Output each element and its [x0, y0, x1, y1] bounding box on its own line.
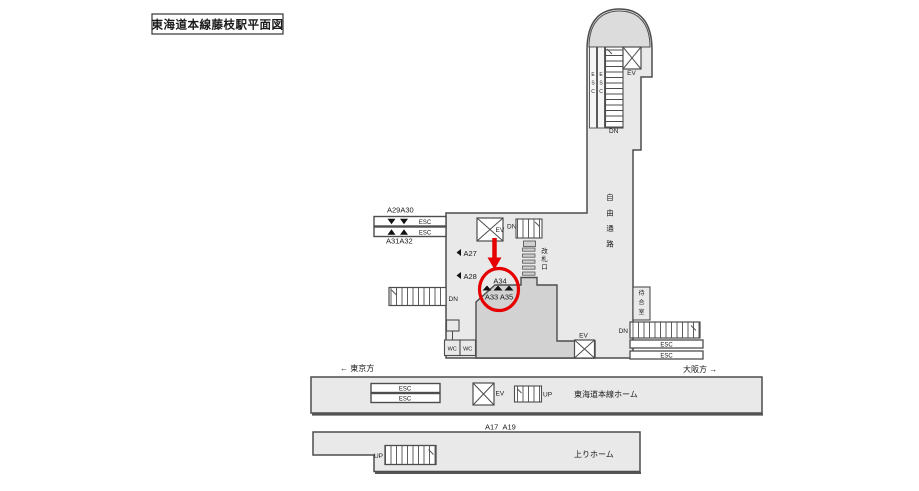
- waiting-room-label: 待合室: [638, 289, 644, 316]
- concourse-ev-label: EV: [496, 227, 505, 234]
- tower-staircase: [606, 47, 624, 128]
- south-elevator: [575, 340, 595, 358]
- west-esc-label-1: ESC: [419, 220, 432, 226]
- up-platform-label: 上りホーム: [574, 450, 614, 459]
- west-dn-label: DN: [449, 296, 459, 303]
- wc-room-2: WC: [460, 340, 476, 356]
- south-ev-label: EV: [579, 333, 588, 340]
- platform-escalator-2: ESC: [371, 394, 440, 403]
- ad-label-a19: A19: [503, 423, 516, 432]
- main-platform-label: 東海道本線ホーム: [574, 389, 638, 399]
- west-staircase: [389, 288, 446, 306]
- west-escalator-1: ESC: [374, 217, 446, 227]
- gate-connector: [524, 241, 536, 247]
- platform-escalator-1: ESC: [371, 384, 440, 393]
- page-title: 東海道本線藤枝駅平面図: [152, 18, 284, 32]
- ad-label-a34: A34: [493, 277, 506, 286]
- platform-esc-label-2: ESC: [399, 397, 412, 403]
- floorplan-svg: 東海道本線藤枝駅平面図 ESC ESC DN EV 自由通路 待合室 DN ES…: [0, 0, 919, 491]
- se-esc-label-2: ESC: [660, 354, 673, 360]
- station-floorplan: 東海道本線藤枝駅平面図 ESC ESC DN EV 自由通路 待合室 DN ES…: [0, 0, 919, 491]
- up-platform-up-label: UP: [374, 453, 383, 460]
- concourse-dn-label: DN: [507, 224, 517, 231]
- tower-escalator-1: ESC: [590, 47, 597, 128]
- wc-label-1: WC: [448, 347, 457, 353]
- se-staircase: [630, 322, 700, 338]
- direction-osaka: 大阪方 →: [683, 364, 717, 374]
- platform-esc-label-1: ESC: [399, 387, 412, 393]
- up-platform-staircase: [385, 446, 436, 465]
- west-esc-label-2: ESC: [419, 231, 432, 237]
- ad-label-a33-a35: A33 A35: [485, 293, 513, 302]
- wc-room-1: WC: [445, 340, 461, 356]
- tower-escalator-2: ESC: [598, 47, 605, 128]
- ad-label-a29-a30: A29A30: [387, 206, 414, 215]
- tower-ev-label: EV: [627, 70, 636, 77]
- direction-tokyo: ← 東京方: [340, 363, 374, 373]
- title-box: 東海道本線藤枝駅平面図: [152, 14, 284, 34]
- wc-label-2: WC: [463, 347, 472, 353]
- se-escalator-1: ESC: [630, 340, 703, 349]
- se-esc-label-1: ESC: [660, 343, 673, 349]
- ad-label-a17: A17: [485, 423, 498, 432]
- ad-markers-a33-a35: [483, 286, 514, 291]
- ad-label-a31-a32: A31A32: [386, 237, 413, 246]
- se-escalator-2: ESC: [630, 351, 703, 360]
- platform-ev-label: EV: [496, 391, 505, 398]
- west-escalator-2: ESC: [374, 227, 446, 237]
- concourse-staircase: [516, 219, 542, 238]
- se-dn-label: DN: [619, 328, 629, 335]
- small-room-box: [447, 320, 460, 331]
- tower-dn-label: DN: [609, 128, 619, 135]
- platform-up-label: UP: [543, 392, 552, 399]
- ad-label-a27: A27: [464, 249, 477, 258]
- waiting-room: 待合室: [633, 287, 650, 320]
- ticket-gate-label: 改札口: [541, 246, 548, 271]
- ad-label-a28: A28: [464, 272, 477, 281]
